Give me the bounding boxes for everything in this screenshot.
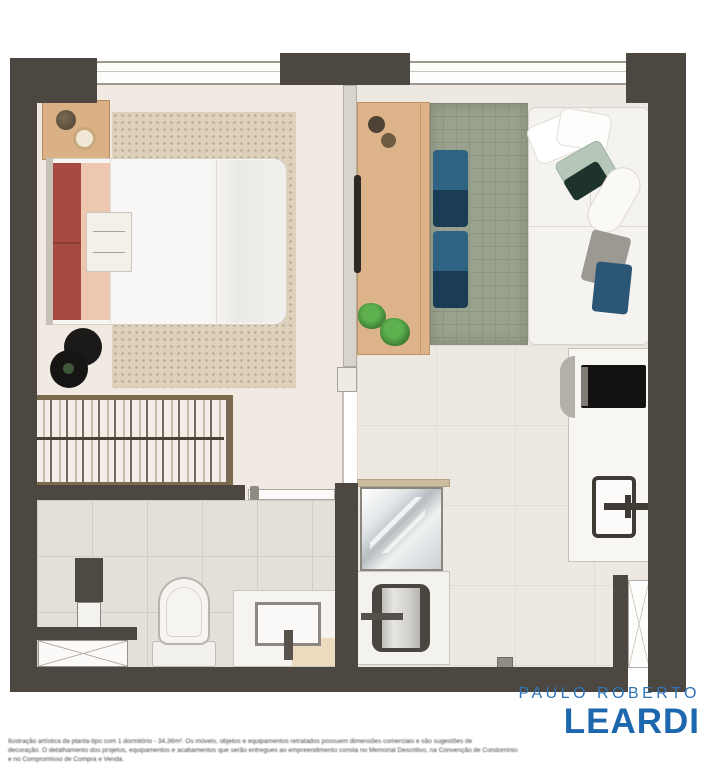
- closet-rail: [22, 437, 224, 440]
- storage-column-base: [77, 602, 101, 630]
- window: [97, 61, 280, 85]
- desk-decor-icon: [368, 116, 385, 133]
- plant-icon: [380, 318, 410, 346]
- nightstand-plate-icon: [73, 127, 96, 150]
- storage-column: [75, 558, 103, 602]
- navy-throw: [591, 261, 632, 314]
- wall: [280, 53, 410, 85]
- crosshatch-cabinet: [38, 640, 128, 667]
- red-pillows: [53, 163, 81, 320]
- kitchen-faucet-icon: [625, 495, 631, 518]
- door-knob-icon: [250, 486, 259, 500]
- bed-duvet: [110, 160, 286, 323]
- wardrobe-with-hangers: [13, 395, 233, 487]
- bathroom-door: [248, 489, 335, 500]
- nightstand-decor-icon: [56, 110, 76, 130]
- bed-headboard: [46, 158, 53, 325]
- wall: [613, 575, 628, 692]
- brand-top-line: PAULO ROBERTO: [518, 686, 700, 702]
- disclaimer-line: Ilustração artística da planta-tipo com …: [8, 737, 708, 746]
- brand-logo: PAULO ROBERTO LEARDI: [518, 686, 700, 739]
- shower-frame: [357, 479, 450, 487]
- counter-edge-arc: [560, 356, 575, 418]
- blue-floor-cushion: [433, 231, 468, 308]
- double-bed: [46, 158, 287, 325]
- wall: [648, 53, 686, 692]
- brand-name: LEARDI: [518, 704, 700, 739]
- entry-door: [628, 580, 650, 668]
- wall: [35, 627, 137, 640]
- partition-wall-cap: [337, 367, 357, 392]
- wall: [335, 483, 358, 667]
- toilet: [158, 577, 210, 645]
- cooktop: [581, 365, 646, 408]
- disclaimer-line: decoração. O detalhamento dos projetos, …: [8, 746, 708, 755]
- black-pouf: [50, 350, 88, 388]
- wall: [10, 58, 37, 692]
- disclaimer-line: e no Compromisso de Compra e Venda.: [8, 755, 708, 764]
- wall: [35, 485, 245, 500]
- partition-edge-line: [342, 392, 344, 483]
- disclaimer-text: Ilustração artística da planta-tipo com …: [8, 737, 708, 765]
- folded-blanket: [86, 212, 132, 272]
- vanity-faucet-icon: [284, 630, 293, 660]
- desk-handle: [354, 175, 361, 273]
- blue-floor-cushion: [433, 150, 468, 227]
- window: [410, 61, 626, 85]
- corner-sofa: [528, 107, 650, 345]
- laundry-faucet-icon: [361, 613, 403, 620]
- floorplan-image: PAULO ROBERTO LEARDI Ilustração artístic…: [0, 0, 712, 768]
- shower-glass-box: [360, 487, 443, 571]
- desk-decor-icon: [381, 133, 396, 148]
